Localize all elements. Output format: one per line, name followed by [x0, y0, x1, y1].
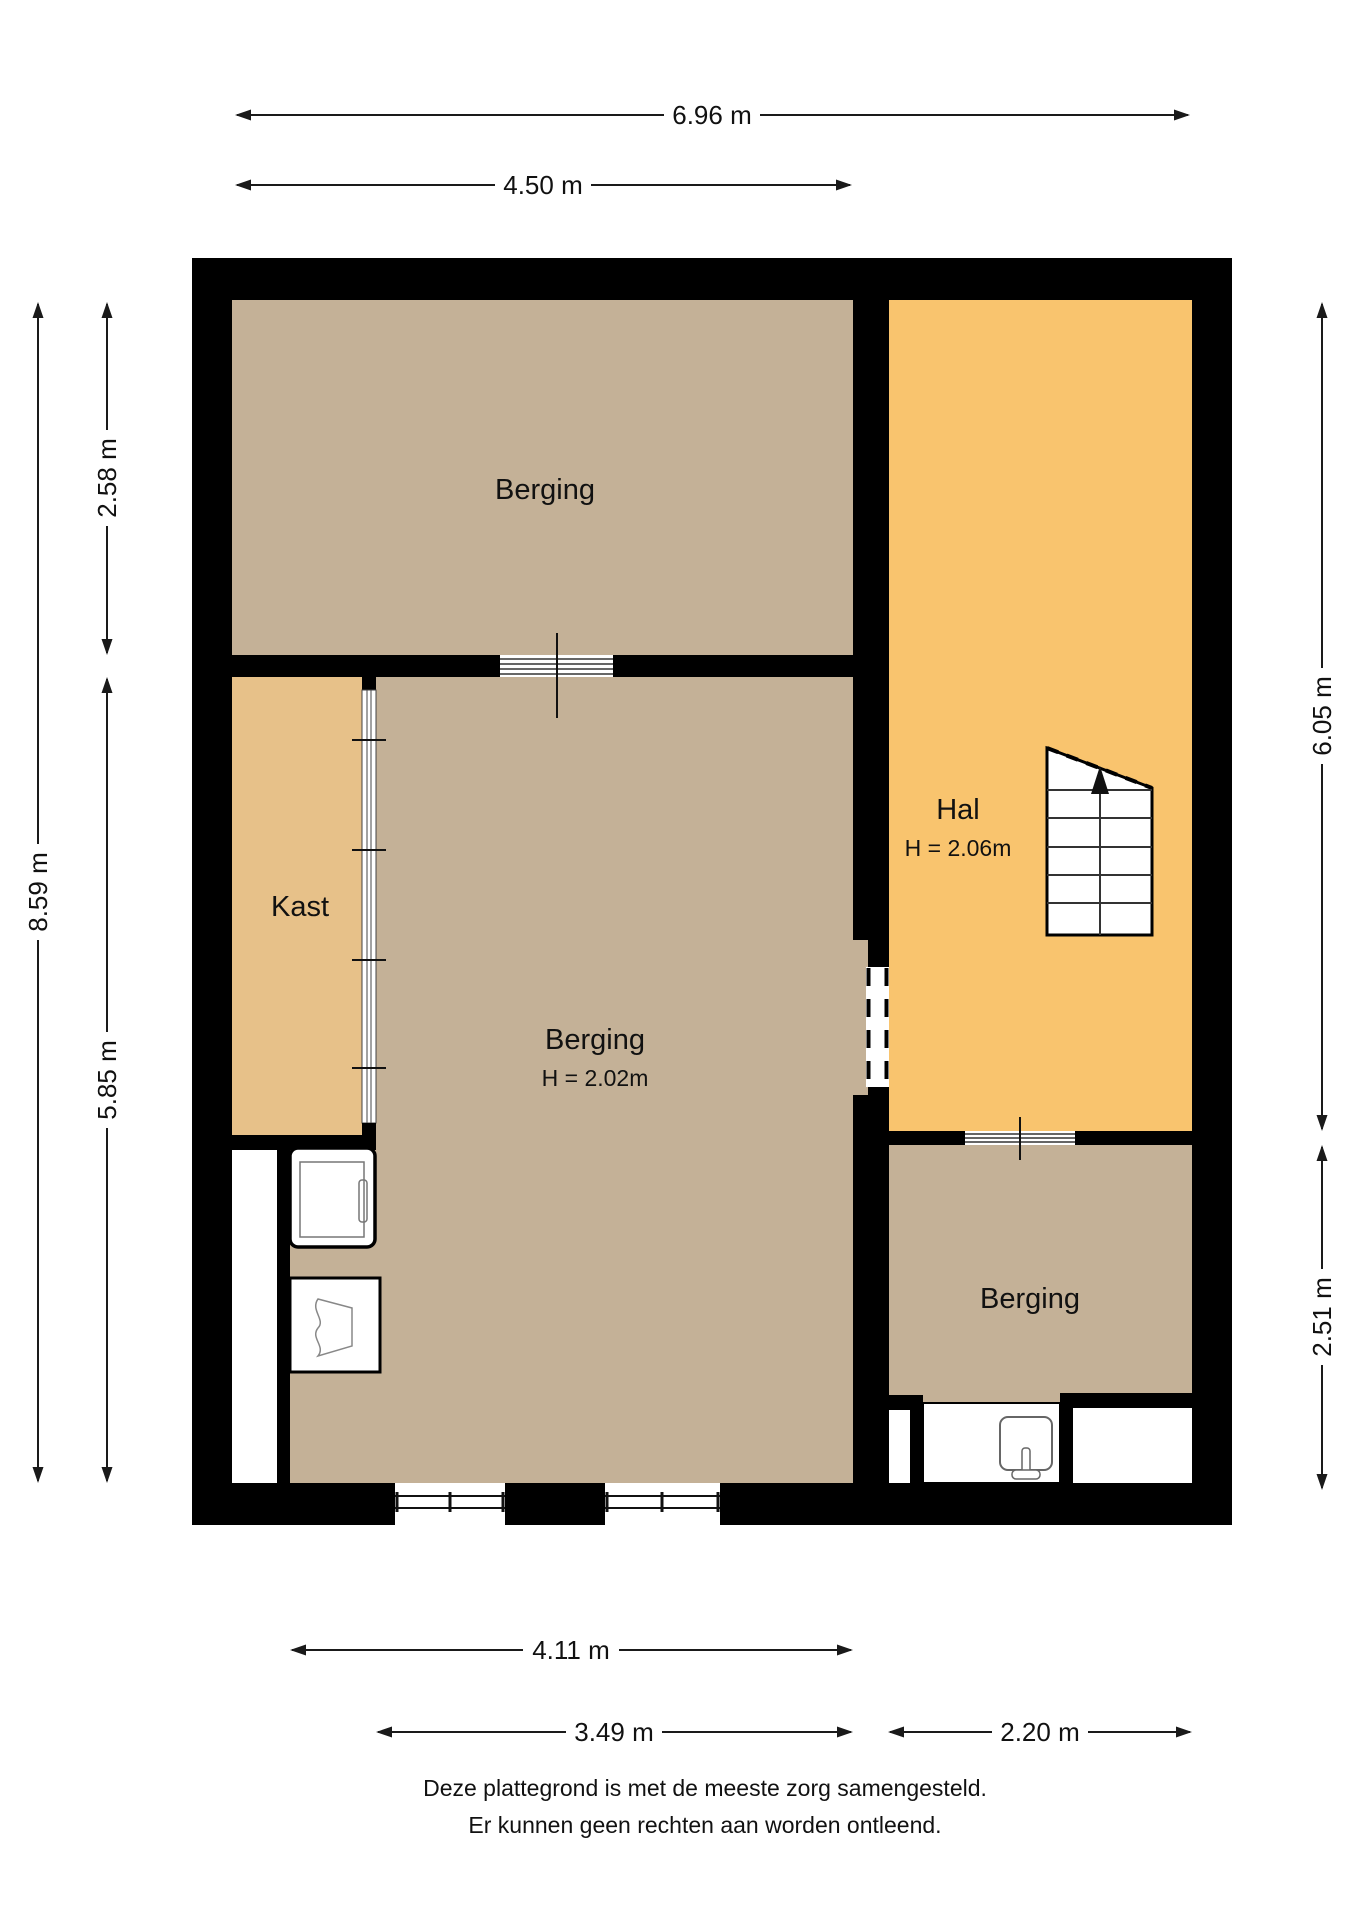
partition-band: [362, 690, 376, 1123]
arrowhead-icon: [1317, 302, 1328, 318]
arrowhead-icon: [33, 1467, 44, 1483]
room-label-berging-main: Berging: [545, 1024, 645, 1056]
dim-bottom-right-section: 2.20 m: [888, 1716, 1192, 1748]
floorplan-drawing: Berging Kast Berging H = 2.02m Hal H = 2…: [0, 0, 1358, 1920]
dimension-label: 4.50 m: [503, 170, 583, 200]
arrowhead-icon: [888, 1727, 904, 1738]
partition-stub: [362, 677, 376, 690]
dim-left-upper: 2.58 m: [91, 302, 123, 655]
arrowhead-icon: [33, 302, 44, 318]
dim-bottom-main: 4.11 m: [290, 1634, 853, 1666]
dim-right-upper: 6.05 m: [1306, 302, 1338, 1131]
arrowhead-icon: [1317, 1115, 1328, 1131]
sink-tap-base: [1012, 1470, 1040, 1479]
arrowhead-icon: [102, 677, 113, 693]
wall-segment: [1060, 1393, 1073, 1483]
disclaimer-line-1: Deze plattegrond is met de meeste zorg s…: [423, 1775, 987, 1801]
dim-right-lower: 2.51 m: [1306, 1145, 1338, 1490]
dimension-label: 4.11 m: [532, 1635, 610, 1665]
arrowhead-icon: [837, 1727, 853, 1738]
dimension-label: 2.20 m: [1000, 1717, 1080, 1747]
wall-segment: [910, 1410, 923, 1483]
dimension-label: 5.85 m: [92, 1040, 122, 1120]
window-left: [395, 1483, 505, 1525]
room-label-kast: Kast: [271, 891, 329, 923]
room-height-hal: H = 2.06m: [905, 835, 1012, 861]
appliance-outline: [290, 1148, 375, 1247]
dimension-label: 8.59 m: [23, 852, 53, 932]
floor-notch: [853, 940, 868, 1095]
room-berging-rear-floor: [888, 1145, 1192, 1402]
sink-room: [923, 1403, 1060, 1483]
dim-bottom-left-section: 3.49 m: [376, 1716, 853, 1748]
disclaimer-line-2: Er kunnen geen rechten aan worden ontlee…: [468, 1812, 941, 1838]
room-label-hal: Hal: [936, 794, 980, 826]
arrowhead-icon: [376, 1727, 392, 1738]
dimension-label: 6.05 m: [1307, 676, 1337, 756]
wall-segment: [1192, 258, 1232, 1525]
floorplan-page: Berging Kast Berging H = 2.02m Hal H = 2…: [0, 0, 1358, 1920]
dim-top-left-section: 4.50 m: [235, 169, 852, 201]
arrowhead-icon: [102, 302, 113, 318]
arrowhead-icon: [1174, 110, 1190, 121]
dim-left-total: 8.59 m: [22, 302, 54, 1483]
room-label-berging-rear: Berging: [980, 1283, 1080, 1315]
arrowhead-icon: [290, 1645, 306, 1656]
boiler-outline: [290, 1278, 380, 1372]
arrowhead-icon: [102, 639, 113, 655]
wall-segment: [192, 258, 232, 1525]
dimension-label: 6.96 m: [672, 100, 752, 130]
arrowhead-icon: [1317, 1145, 1328, 1161]
arrowhead-icon: [235, 180, 251, 191]
partition-stub: [362, 1123, 376, 1137]
window-right: [605, 1483, 720, 1525]
wall-segment: [192, 258, 1232, 300]
arrowhead-icon: [1317, 1474, 1328, 1490]
dim-left-lower: 5.85 m: [91, 677, 123, 1483]
wall-segment: [888, 1395, 923, 1410]
arrowhead-icon: [235, 110, 251, 121]
arrowhead-icon: [836, 180, 852, 191]
boiler-box: [290, 1278, 380, 1372]
arrowhead-icon: [102, 1467, 113, 1483]
dim-top-total: 6.96 m: [235, 99, 1190, 131]
dimension-label: 2.58 m: [92, 438, 122, 518]
arrowhead-icon: [837, 1645, 853, 1656]
room-label-berging-top: Berging: [495, 474, 595, 506]
dimension-label: 3.49 m: [574, 1717, 654, 1747]
room-height-berging-main: H = 2.02m: [542, 1065, 649, 1091]
wall-segment: [853, 1131, 889, 1483]
appliance-box: [290, 1148, 375, 1247]
wall-segment: [277, 1150, 290, 1483]
arrowhead-icon: [1176, 1727, 1192, 1738]
dimension-label: 2.51 m: [1307, 1277, 1337, 1357]
wall-segment: [1073, 1393, 1192, 1408]
room-hal-floor: [888, 300, 1192, 1131]
